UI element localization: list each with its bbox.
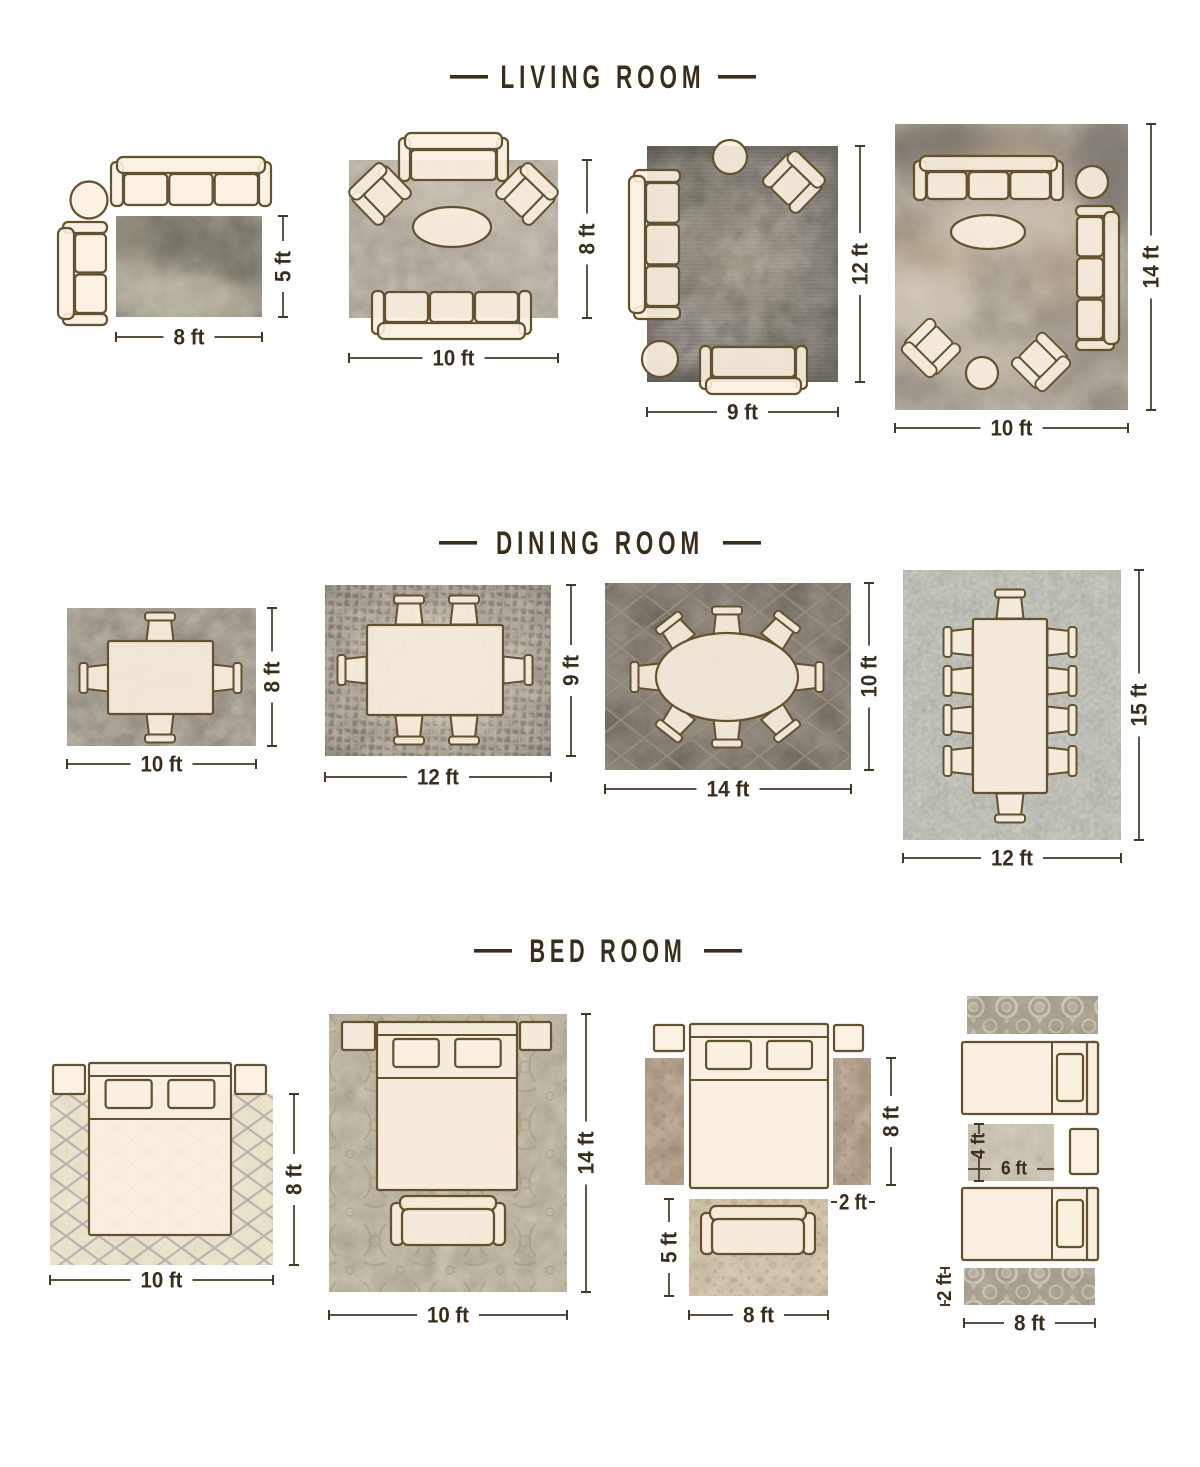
svg-text:10 ft: 10 ft — [433, 346, 476, 371]
svg-text:9 ft: 9 ft — [727, 400, 759, 425]
svg-text:12 ft: 12 ft — [991, 846, 1034, 871]
svg-text:10 ft: 10 ft — [141, 752, 184, 777]
svg-text:DINING ROOM: DINING ROOM — [496, 525, 704, 561]
svg-text:10 ft: 10 ft — [141, 1268, 184, 1293]
svg-text:2 ft: 2 ft — [839, 1190, 868, 1215]
svg-text:14 ft: 14 ft — [574, 1131, 599, 1175]
svg-text:8 ft: 8 ft — [879, 1105, 904, 1137]
svg-text:12 ft: 12 ft — [848, 242, 873, 285]
svg-text:8 ft: 8 ft — [743, 1303, 775, 1328]
svg-text:6 ft: 6 ft — [1001, 1159, 1028, 1180]
svg-text:14 ft: 14 ft — [1139, 245, 1164, 289]
svg-text:8 ft: 8 ft — [260, 661, 285, 693]
svg-text:12 ft: 12 ft — [417, 765, 460, 790]
svg-text:8 ft: 8 ft — [174, 325, 206, 350]
svg-text:8 ft: 8 ft — [1014, 1311, 1046, 1336]
svg-text:5 ft: 5 ft — [657, 1231, 682, 1263]
svg-text:10 ft: 10 ft — [427, 1303, 470, 1328]
svg-text:8 ft: 8 ft — [282, 1163, 307, 1195]
svg-text:9 ft: 9 ft — [559, 654, 584, 686]
svg-text:LIVING ROOM: LIVING ROOM — [501, 59, 706, 95]
svg-text:BED ROOM: BED ROOM — [530, 933, 687, 969]
svg-text:8 ft: 8 ft — [575, 223, 600, 255]
svg-text:4 ft: 4 ft — [969, 1132, 990, 1159]
svg-text:5 ft: 5 ft — [271, 250, 296, 282]
svg-text:10 ft: 10 ft — [991, 416, 1034, 441]
svg-text:15 ft: 15 ft — [1127, 683, 1152, 727]
svg-text:2 ft: 2 ft — [934, 1273, 956, 1301]
svg-text:10 ft: 10 ft — [857, 655, 882, 698]
svg-text:14 ft: 14 ft — [707, 777, 751, 802]
